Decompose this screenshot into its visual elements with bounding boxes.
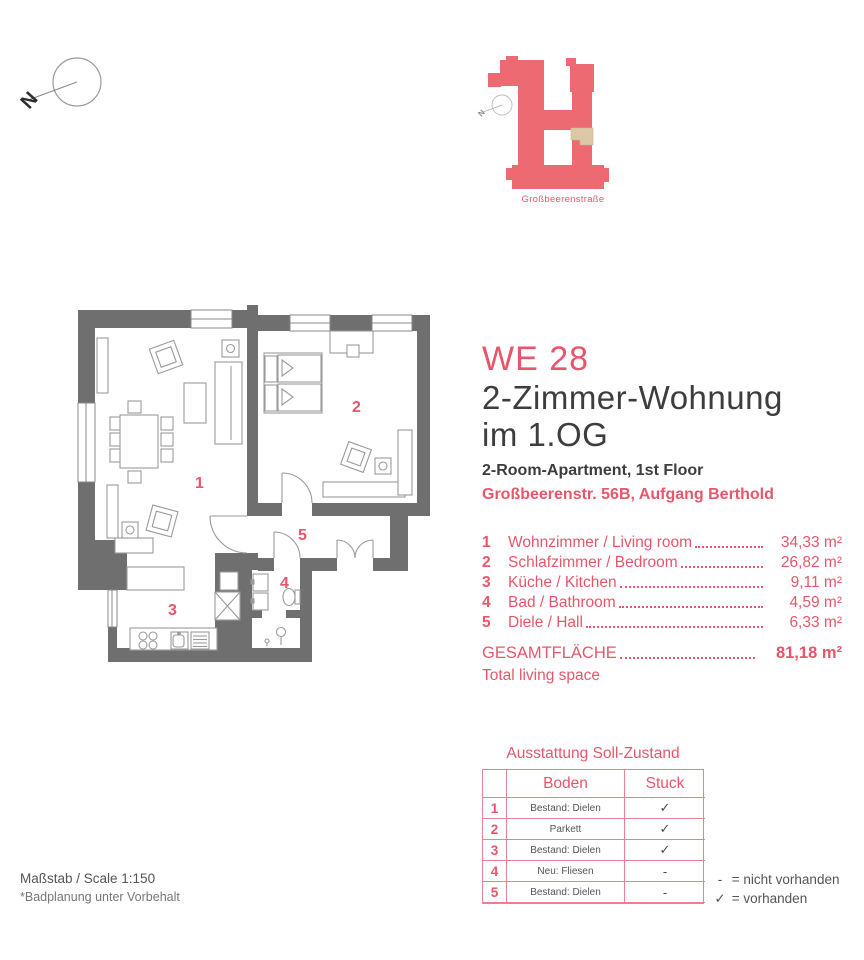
double-bed [264, 353, 322, 413]
north-label: N [16, 88, 42, 113]
room-name: Diele / Hall [508, 614, 583, 632]
room-name: Küche / Kitchen [508, 574, 617, 592]
room-label-bath: 4 [280, 575, 289, 592]
room-nr: 5 [482, 614, 508, 632]
room-name: Schlafzimmer / Bedroom [508, 554, 678, 572]
total-sublabel: Total living space [482, 667, 842, 685]
living-room-furniture [97, 338, 242, 553]
kitchen-niche [220, 572, 238, 590]
leader-dots [619, 606, 763, 608]
coffee-table [184, 383, 206, 423]
eq-row-nr: 4 [483, 861, 507, 882]
legend-line: - = nicht vorhanden [712, 870, 839, 889]
bedroom-side-table [375, 458, 391, 474]
equipment-table: Boden Stuck 1 Bestand: Dielen ✓ 2 Parket… [482, 769, 704, 904]
dining-table-set [110, 401, 173, 483]
armchair-top [149, 340, 182, 373]
eq-header-stuck: Stuck [625, 770, 705, 798]
site-north-label: N [476, 108, 487, 119]
room-list: 1 Wohnzimmer / Living room 34,33 m² 2 Sc… [482, 532, 842, 632]
room-area: 34,33 m² [766, 534, 842, 552]
eq-row-stuck: ✓ [625, 840, 705, 861]
builtin-cupboard [398, 430, 412, 495]
legend-text: = nicht vorhanden [732, 872, 840, 887]
leader-dots [620, 586, 763, 588]
kitchen-peninsula [127, 567, 184, 590]
street-label: Großbeerenstraße [478, 194, 648, 205]
eq-row-stuck: - [625, 861, 705, 882]
room-nr: 3 [482, 574, 508, 592]
eq-row-boden: Neu: Fliesen [507, 861, 625, 882]
eq-row-nr: 1 [483, 798, 507, 819]
shelf-left-top [97, 338, 108, 393]
equipment-heading: Ausstattung Soll-Zustand [482, 745, 704, 763]
room-name: Bad / Bathroom [508, 594, 616, 612]
side-table-top [222, 340, 239, 357]
wardrobe [330, 331, 373, 357]
window-living-left [78, 403, 95, 482]
leader-dots [681, 566, 763, 568]
equipment-legend: - = nicht vorhanden ✓ = vorhanden [712, 870, 839, 908]
page-title-line1: 2-Zimmer-Wohnung [482, 379, 783, 417]
leader-dots [586, 626, 763, 628]
room-label-living: 1 [195, 475, 204, 492]
room-nr: 1 [482, 534, 508, 552]
room-label-hall: 5 [298, 527, 307, 544]
north-arrow: N [14, 48, 144, 128]
eq-row-nr: 2 [483, 819, 507, 840]
shaft-box [215, 592, 240, 620]
floor-plan: 1 2 3 4 5 [60, 290, 450, 680]
room-nr: 4 [482, 594, 508, 612]
kitchen-sink [171, 632, 188, 649]
legend-text: = vorhanden [732, 891, 807, 906]
room-list-row: 2 Schlafzimmer / Bedroom 26,82 m² [482, 552, 842, 572]
eq-row-stuck: ✓ [625, 819, 705, 840]
unit-id: WE 28 [482, 340, 589, 379]
room-name: Wohnzimmer / Living room [508, 534, 692, 552]
room-list-row: 4 Bad / Bathroom 4,59 m² [482, 592, 842, 612]
room-list-row: 5 Diele / Hall 6,33 m² [482, 612, 842, 632]
legend-symbol: - [712, 870, 728, 889]
total-label: GESAMTFLÄCHE [482, 644, 617, 663]
drainer [191, 632, 209, 649]
eq-row-stuck: ✓ [625, 798, 705, 819]
window-kitchen-left [108, 590, 117, 627]
shelf-left-bottom [107, 485, 118, 538]
legend-line: ✓ = vorhanden [712, 889, 839, 908]
page-title-line2: im 1.OG [482, 416, 608, 454]
bedroom-chair [341, 442, 372, 473]
eq-row-nr: 3 [483, 840, 507, 861]
dining-table [120, 415, 158, 468]
door-bathroom [274, 532, 300, 558]
address: Großbeerenstr. 56B, Aufgang Berthold [482, 486, 774, 504]
bath-sink-2 [251, 593, 268, 610]
bath-sink-1 [251, 574, 268, 591]
site-plan: N [466, 48, 636, 198]
room-area: 9,11 m² [766, 574, 842, 592]
eq-row-boden: Bestand: Dielen [507, 882, 625, 903]
eq-row-boden: Bestand: Dielen [507, 798, 625, 819]
room-label-bedroom: 2 [352, 399, 361, 416]
room-area: 6,33 m² [766, 614, 842, 632]
room-area: 26,82 m² [766, 554, 842, 572]
door-living-hall [210, 516, 247, 553]
room-label-kitchen: 3 [168, 602, 177, 619]
bath-note: *Badplanung unter Vorbehalt [20, 890, 180, 904]
leader-dots [620, 657, 755, 659]
window-bedroom-2 [372, 315, 412, 331]
room-nr: 2 [482, 554, 508, 572]
eq-row-stuck: - [625, 882, 705, 903]
armchair-bottom [146, 505, 178, 537]
legend-symbol: ✓ [712, 889, 728, 908]
sofa [215, 362, 242, 444]
scale-note: Maßstab / Scale 1:150 [20, 871, 155, 886]
floorplan-page: N N Großbeerenstraße [0, 0, 864, 960]
leader-dots [695, 546, 763, 548]
eq-row-nr: 5 [483, 882, 507, 903]
subtitle-en: 2-Room-Apartment, 1st Floor [482, 462, 703, 480]
eq-header-empty [483, 770, 507, 798]
room-list-row: 3 Küche / Kitchen 9,11 m² [482, 572, 842, 592]
total-value: 81,18 m² [758, 644, 842, 663]
total-area-block: GESAMTFLÄCHE 81,18 m² Total living space [482, 641, 842, 685]
door-entrance-double [337, 540, 373, 558]
bedroom-furniture [264, 331, 412, 497]
side-table-bottom [122, 522, 138, 538]
shower [265, 628, 286, 647]
window-living-top [191, 310, 232, 328]
eq-row-boden: Bestand: Dielen [507, 840, 625, 861]
room-area: 4,59 m² [766, 594, 842, 612]
eq-header-boden: Boden [507, 770, 625, 798]
window-bedroom-1 [290, 315, 330, 331]
sideboard [115, 538, 153, 553]
site-north-arrow: N [476, 95, 512, 118]
door-bedroom [282, 473, 312, 503]
low-cabinet [323, 482, 405, 497]
site-building [488, 56, 609, 189]
room-list-row: 1 Wohnzimmer / Living room 34,33 m² [482, 532, 842, 552]
eq-row-boden: Parkett [507, 819, 625, 840]
